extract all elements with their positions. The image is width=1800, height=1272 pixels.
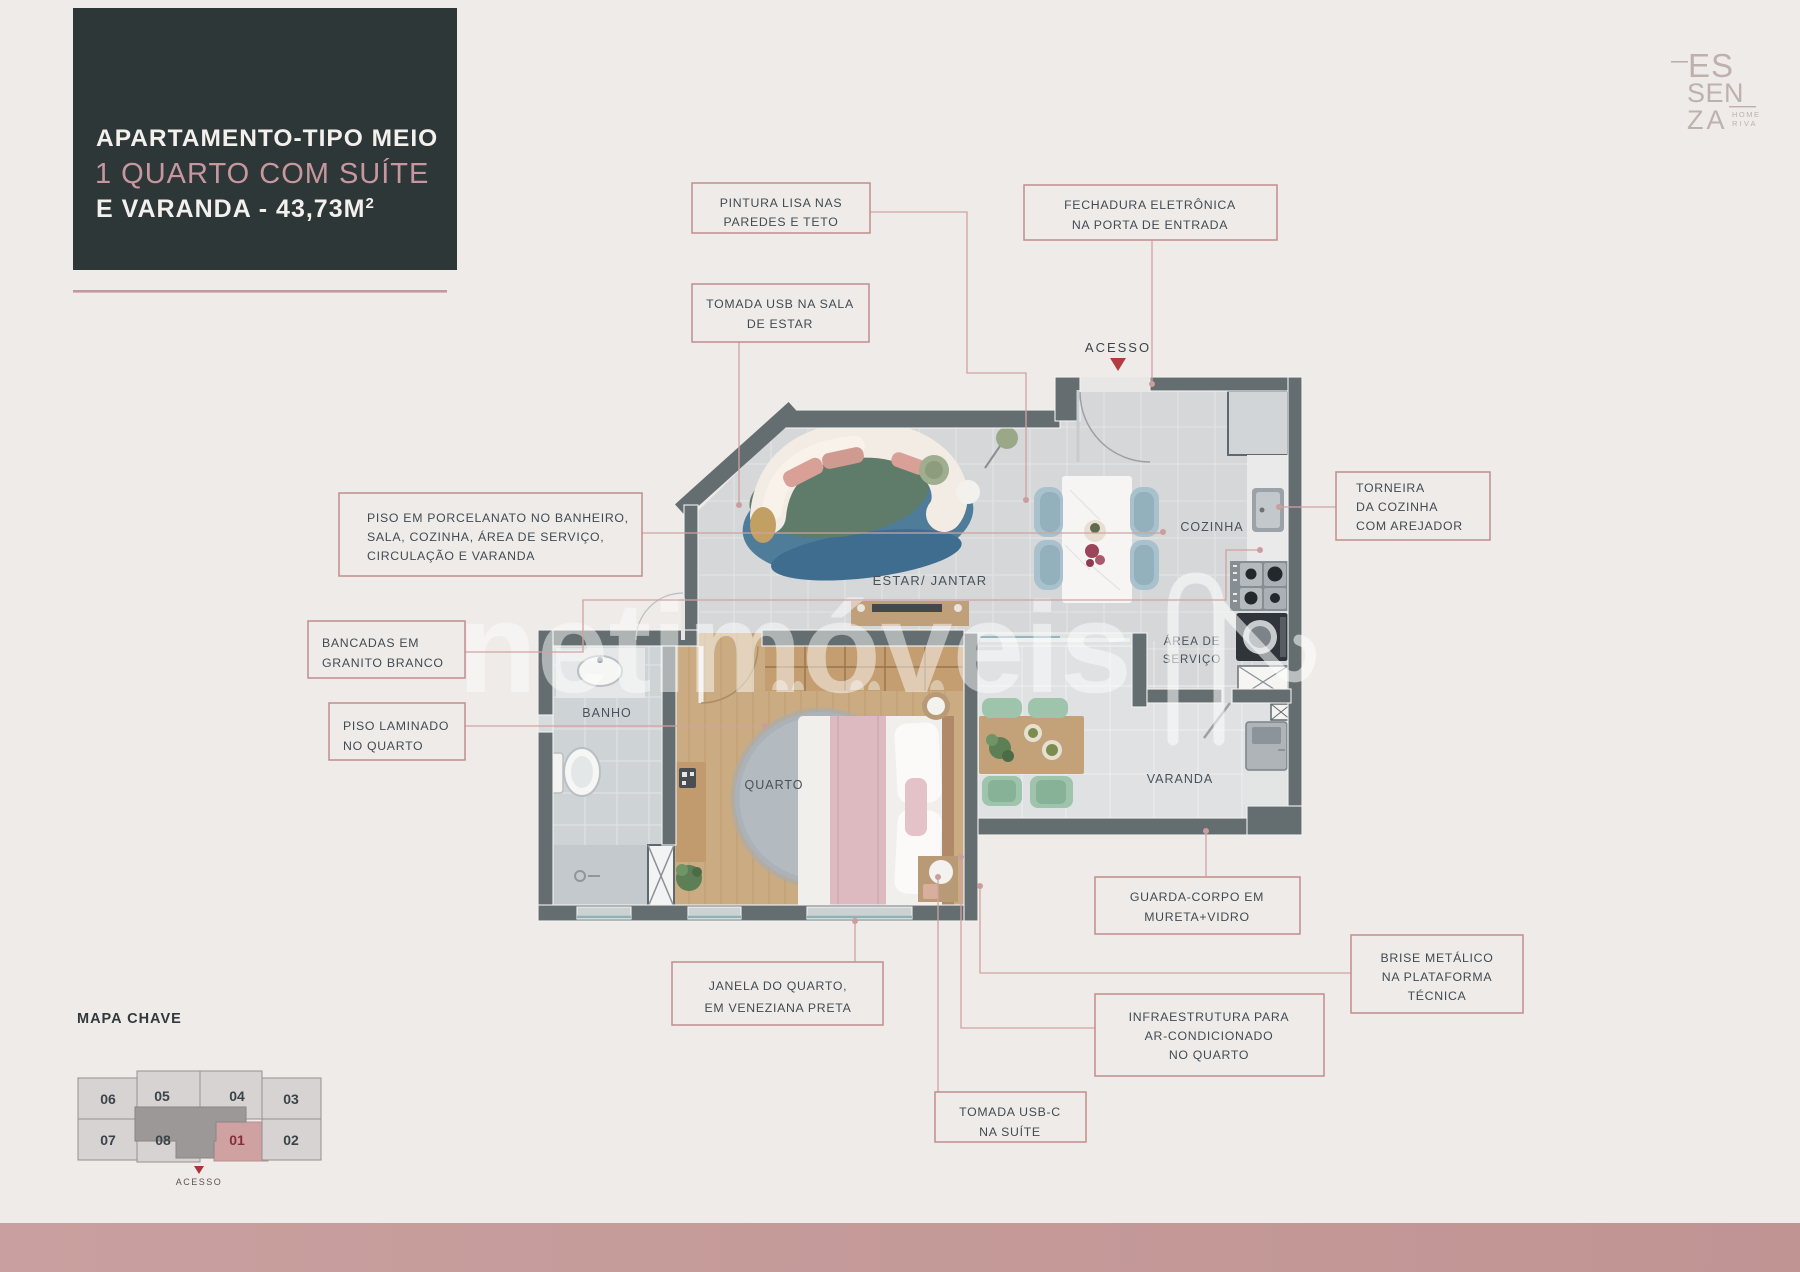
svg-text:GRANITO BRANCO: GRANITO BRANCO	[322, 656, 444, 670]
svg-text:TOMADA USB NA SALA: TOMADA USB NA SALA	[706, 297, 854, 311]
svg-text:AR-CONDICIONADO: AR-CONDICIONADO	[1145, 1029, 1274, 1043]
svg-text:SALA, COZINHA, ÁREA DE SERVIÇO: SALA, COZINHA, ÁREA DE SERVIÇO,	[367, 529, 604, 544]
svg-text:VARANDA: VARANDA	[1147, 772, 1214, 786]
svg-text:QUARTO: QUARTO	[744, 778, 803, 792]
svg-text:FECHADURA ELETRÔNICA: FECHADURA ELETRÔNICA	[1064, 197, 1236, 212]
svg-text:INFRAESTRUTURA PARA: INFRAESTRUTURA PARA	[1129, 1010, 1290, 1024]
svg-text:TÉCNICA: TÉCNICA	[1408, 988, 1467, 1003]
svg-text:SEN: SEN	[1687, 78, 1744, 108]
svg-text:TORNEIRA: TORNEIRA	[1356, 481, 1425, 495]
svg-text:PAREDES E TETO: PAREDES E TETO	[723, 215, 838, 229]
svg-text:06: 06	[100, 1091, 116, 1107]
svg-text:07: 07	[100, 1132, 116, 1148]
svg-text:BRISE METÁLICO: BRISE METÁLICO	[1381, 950, 1494, 965]
svg-text:ZA: ZA	[1687, 105, 1728, 135]
svg-text:APARTAMENTO-TIPO MEIO: APARTAMENTO-TIPO MEIO	[96, 125, 438, 152]
svg-text:RIVA: RIVA	[1732, 119, 1758, 128]
svg-text:NA PLATAFORMA: NA PLATAFORMA	[1382, 970, 1493, 984]
svg-text:NA SUÍTE: NA SUÍTE	[979, 1124, 1041, 1139]
svg-text:MURETA+VIDRO: MURETA+VIDRO	[1144, 910, 1250, 924]
svg-text:GUARDA-CORPO EM: GUARDA-CORPO EM	[1130, 890, 1264, 904]
svg-text:MAPA CHAVE: MAPA CHAVE	[77, 1011, 182, 1027]
svg-text:ACESSO: ACESSO	[1085, 340, 1151, 355]
svg-text:08: 08	[155, 1132, 171, 1148]
svg-text:EM VENEZIANA PRETA: EM VENEZIANA PRETA	[705, 1001, 852, 1015]
svg-text:CIRCULAÇÃO E VARANDA: CIRCULAÇÃO E VARANDA	[367, 549, 535, 563]
svg-text:05: 05	[154, 1088, 170, 1104]
svg-text:PISO EM PORCELANATO NO BANHEIR: PISO EM PORCELANATO NO BANHEIRO,	[367, 511, 629, 525]
svg-text:04: 04	[229, 1088, 245, 1104]
svg-text:DE ESTAR: DE ESTAR	[747, 317, 813, 331]
svg-text:02: 02	[283, 1132, 299, 1148]
svg-text:netimóveis: netimóveis	[458, 576, 1132, 720]
svg-text:NO QUARTO: NO QUARTO	[343, 739, 423, 753]
svg-text:NA PORTA DE ENTRADA: NA PORTA DE ENTRADA	[1072, 218, 1228, 232]
svg-text:01: 01	[229, 1132, 245, 1148]
svg-text:DA COZINHA: DA COZINHA	[1356, 500, 1438, 514]
svg-text:COZINHA: COZINHA	[1180, 520, 1243, 534]
svg-text:COM AREJADOR: COM AREJADOR	[1356, 519, 1463, 533]
svg-text:BANCADAS EM: BANCADAS EM	[322, 636, 419, 650]
svg-text:JANELA DO QUARTO,: JANELA DO QUARTO,	[709, 979, 848, 993]
svg-text:03: 03	[283, 1091, 299, 1107]
svg-text:PINTURA LISA NAS: PINTURA LISA NAS	[720, 196, 843, 210]
svg-text:PISO LAMINADO: PISO LAMINADO	[343, 719, 449, 733]
svg-text:ACESSO: ACESSO	[176, 1177, 223, 1187]
svg-text:TOMADA USB-C: TOMADA USB-C	[959, 1105, 1061, 1119]
svg-text:HOME: HOME	[1732, 110, 1761, 119]
svg-text:E VARANDA - 43,73M2: E VARANDA - 43,73M2	[96, 195, 375, 223]
svg-text:NO QUARTO: NO QUARTO	[1169, 1048, 1249, 1062]
svg-text:1 QUARTO COM SUÍTE: 1 QUARTO COM SUÍTE	[95, 157, 429, 190]
